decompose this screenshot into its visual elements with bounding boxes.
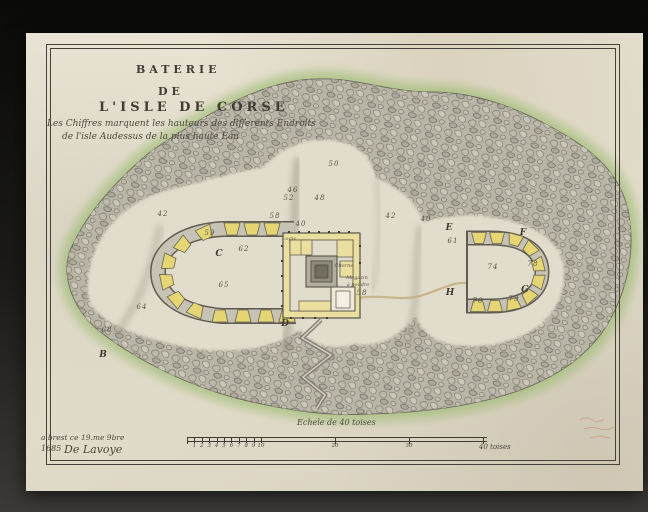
signature-year: 1685	[41, 444, 61, 453]
spot-height: 40	[421, 215, 432, 223]
scale-tick-label: 10	[258, 443, 265, 449]
spot-height: 42	[158, 210, 169, 218]
reference-letter: F	[520, 228, 526, 238]
reference-letter: H	[446, 288, 455, 298]
scale-label: Echele de 40 toises	[297, 418, 376, 427]
spot-height: 61	[448, 237, 459, 245]
map-subtitle-line2: de l'isle Audessus de la plus haute Eau	[62, 132, 239, 142]
map-title-line3: L'ISLE DE CORSE	[99, 100, 289, 115]
reference-letter: C	[215, 249, 222, 259]
structure-label: Magazin	[346, 275, 368, 281]
scale-tick-label: 4	[215, 443, 219, 449]
scale-tick-label: 9	[252, 443, 256, 449]
spot-height: 59	[205, 229, 216, 237]
reference-letter: D	[281, 319, 289, 329]
map-subtitle-line1: Les Chiffres marquent les hauteurs des d…	[47, 119, 316, 129]
scale-tick-label: 8	[244, 443, 248, 449]
signature-name: De Lavoye	[64, 443, 122, 456]
map-title-line1: BATERIE	[136, 63, 220, 76]
spot-height: 79	[509, 295, 520, 303]
scale-tick-label: 5	[222, 443, 226, 449]
scale-tick-label: 1	[193, 443, 197, 449]
structure-label: à poudre	[347, 282, 370, 288]
scale-tick-label: 6	[230, 443, 234, 449]
spot-height: 48	[315, 194, 326, 202]
spot-height: 62	[239, 245, 250, 253]
scanned-map-photo: BATERIE DE L'ISLE DE CORSE Les Chiffres …	[0, 0, 648, 512]
signature-place-date: a brest ce 19.me 9bre	[41, 433, 124, 442]
spot-height: 68	[102, 326, 113, 334]
spot-height: 64	[137, 303, 148, 311]
reference-letter: G	[521, 285, 529, 295]
reference-letter: B	[99, 350, 107, 360]
structure-label: Citerne	[335, 263, 354, 269]
spot-height: 78	[528, 260, 539, 268]
spot-height: 65	[219, 281, 230, 289]
spot-height: 42	[386, 212, 397, 220]
scale-tick-label: 2	[200, 443, 204, 449]
spot-height: 40	[296, 220, 307, 228]
scale-tick-label: 30	[406, 443, 413, 449]
spot-height: 58	[357, 289, 368, 297]
structure-label: Logis	[282, 236, 296, 242]
reference-letter: E	[446, 223, 453, 233]
map-title-line2: DE	[158, 85, 184, 98]
spot-height: 70	[473, 297, 484, 305]
scale-tick-label: 3	[207, 443, 211, 449]
scale-end-label: 40 toises	[479, 443, 511, 451]
scale-tick-label: 7	[237, 443, 241, 449]
spot-height: 74	[488, 263, 499, 271]
scale-tick-label: 20	[332, 443, 339, 449]
spot-height: 52	[284, 194, 295, 202]
spot-height: 58	[270, 212, 281, 220]
scale-tick	[187, 437, 188, 444]
spot-height: 50	[329, 160, 340, 168]
spot-height: 46	[288, 186, 299, 194]
